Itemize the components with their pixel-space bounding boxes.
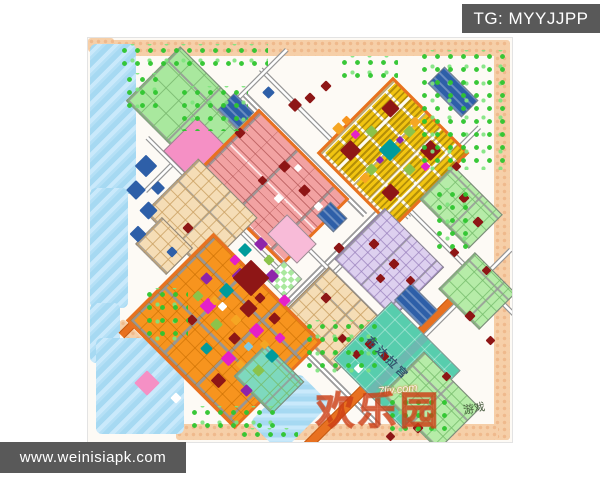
building-teal_small bbox=[238, 243, 252, 257]
tree-cluster bbox=[178, 86, 248, 131]
tree-cluster bbox=[338, 56, 398, 84]
tree-cluster bbox=[123, 73, 163, 108]
website-badge: www.weinisiapk.com bbox=[0, 442, 186, 473]
water-area bbox=[90, 44, 136, 194]
watermark-brand: 欢乐园 bbox=[316, 380, 442, 435]
screenshot-root: 布达拉宫 7liy.com 欢乐园 游戏 TG: MYYJJPP www.wei… bbox=[0, 0, 600, 480]
building-blue bbox=[262, 86, 275, 99]
water-area bbox=[90, 188, 128, 308]
tree-cluster bbox=[418, 50, 506, 170]
telegram-badge: TG: MYYJJPP bbox=[462, 4, 600, 33]
tree-cluster bbox=[143, 288, 188, 343]
tree-cluster bbox=[433, 188, 475, 250]
game-city-map: 布达拉宫 7liy.com 欢乐园 游戏 bbox=[88, 38, 512, 442]
building-darkred bbox=[320, 80, 331, 91]
tree-cluster bbox=[118, 44, 268, 66]
tree-cluster bbox=[238, 428, 298, 442]
building-blue bbox=[135, 155, 158, 178]
building-darkred bbox=[304, 92, 315, 103]
watermark-brand-suffix: 游戏 bbox=[462, 398, 486, 418]
